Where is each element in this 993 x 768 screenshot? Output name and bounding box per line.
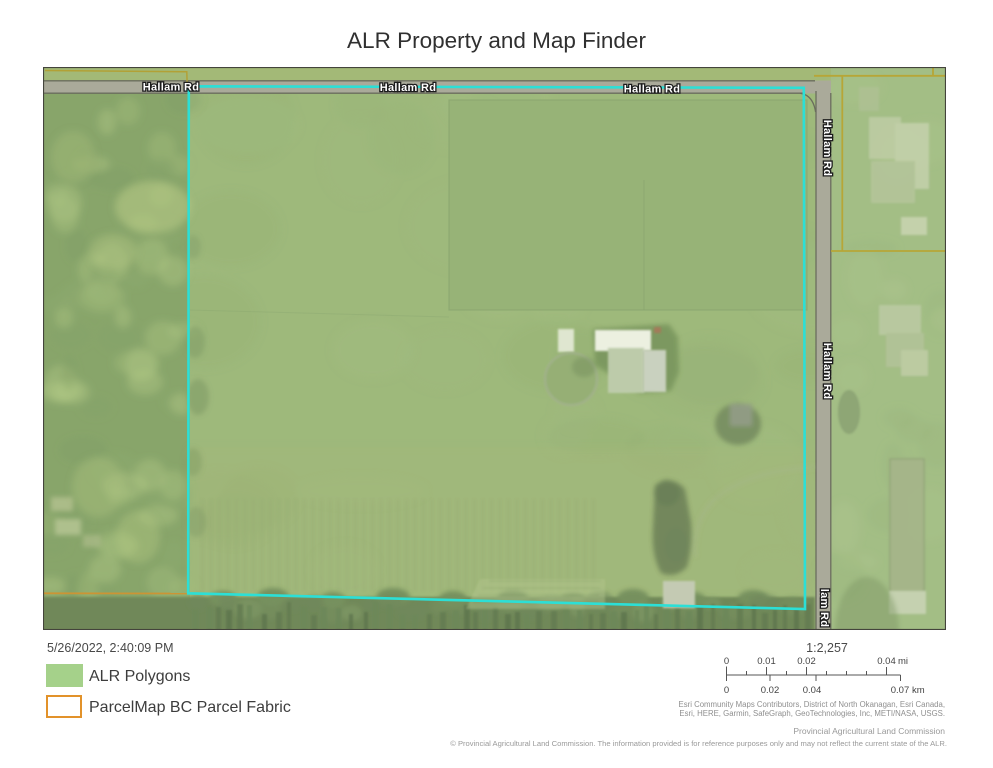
svg-text:lam Rd: lam Rd xyxy=(818,589,830,627)
svg-text:Hallam Rd: Hallam Rd xyxy=(821,343,833,400)
svg-text:km: km xyxy=(912,685,925,696)
svg-text:0.07: 0.07 xyxy=(891,685,910,696)
svg-text:Hallam Rd: Hallam Rd xyxy=(380,82,437,94)
svg-text:0: 0 xyxy=(724,685,729,696)
svg-text:0: 0 xyxy=(724,656,729,667)
svg-text:Hallam Rd: Hallam Rd xyxy=(624,84,681,96)
svg-text:0.04: 0.04 xyxy=(877,656,896,667)
svg-text:mi: mi xyxy=(898,656,908,667)
svg-text:0.02: 0.02 xyxy=(761,685,780,696)
svg-text:0.01: 0.01 xyxy=(757,656,776,667)
svg-text:Hallam Rd: Hallam Rd xyxy=(821,120,833,177)
svg-text:Hallam Rd: Hallam Rd xyxy=(143,82,200,94)
svg-text:0.04: 0.04 xyxy=(803,685,822,696)
svg-text:0.02: 0.02 xyxy=(797,656,816,667)
